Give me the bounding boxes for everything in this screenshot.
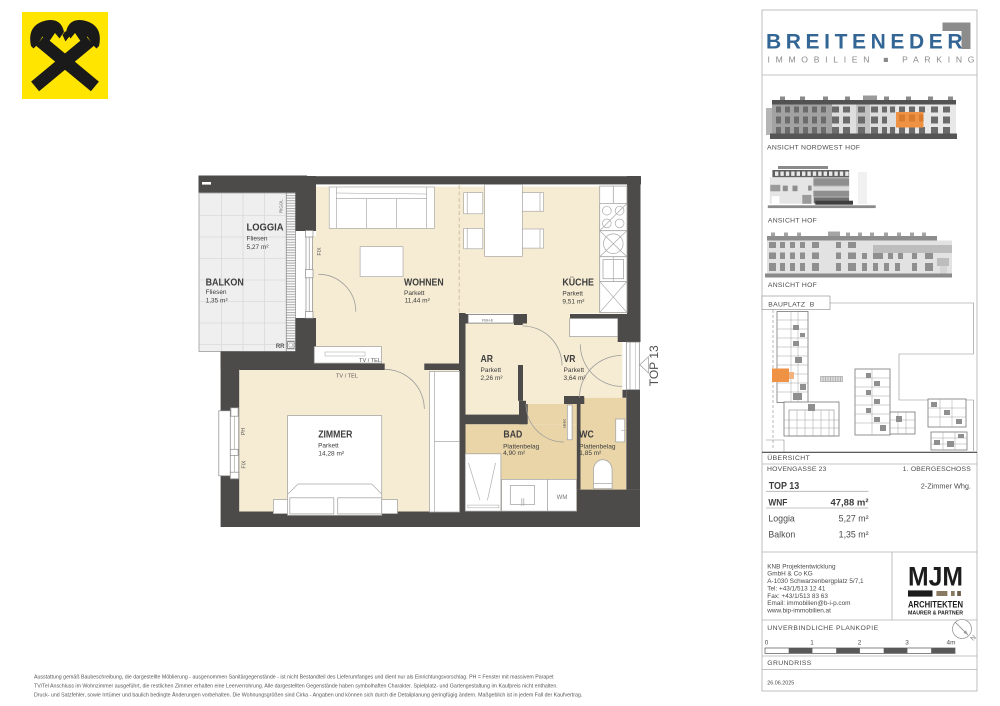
svg-text:Tel: +43/1/513 12 41: Tel: +43/1/513 12 41 — [767, 585, 826, 592]
svg-text:FIX: FIX — [241, 460, 247, 468]
svg-text:Parkett: Parkett — [404, 290, 425, 297]
svg-text:Parkett: Parkett — [564, 367, 585, 374]
svg-text:Balkon: Balkon — [768, 530, 795, 540]
svg-text:Parkett: Parkett — [481, 367, 502, 374]
svg-text:0: 0 — [765, 639, 769, 646]
svg-text:Email: immobilien@b-i-p.com: Email: immobilien@b-i-p.com — [767, 600, 850, 607]
svg-text:www.bip-immobilien.at: www.bip-immobilien.at — [766, 608, 831, 615]
svg-text:HOVENGASSE 23: HOVENGASSE 23 — [767, 466, 827, 473]
svg-text:UNVERBINDLICHE PLANKOPIE: UNVERBINDLICHE PLANKOPIE — [767, 625, 878, 632]
svg-text:Fax: +43/1/513 83 63: Fax: +43/1/513 83 63 — [767, 593, 828, 600]
svg-text:RR: RR — [276, 344, 285, 350]
svg-text:TOP 13: TOP 13 — [769, 481, 800, 492]
svg-text:FBH-E: FBH-E — [482, 319, 494, 323]
svg-text:ZIMMER: ZIMMER — [318, 430, 353, 441]
svg-text:3,64 m²: 3,64 m² — [564, 375, 587, 382]
svg-text:ANSICHT HOF: ANSICHT HOF — [768, 282, 817, 289]
svg-text:Druck- und Satzfehler, sowie I: Druck- und Satzfehler, sowie Irrtümer un… — [34, 692, 582, 699]
svg-text:1. OBERGESCHOSS: 1. OBERGESCHOSS — [903, 466, 972, 473]
svg-text:1,35 m²: 1,35 m² — [839, 530, 869, 540]
svg-text:4,90 m²: 4,90 m² — [503, 450, 526, 457]
svg-text:ARCHITEKTEN: ARCHITEKTEN — [908, 599, 963, 609]
svg-text:ANSICHT HOF: ANSICHT HOF — [768, 217, 817, 224]
svg-text:KÜCHE: KÜCHE — [562, 276, 594, 289]
svg-text:2,26 m²: 2,26 m² — [481, 375, 504, 382]
svg-text:47,88 m²: 47,88 m² — [830, 498, 868, 509]
svg-text:TV / TEL: TV / TEL — [336, 374, 358, 380]
svg-text:IMMOBILIEN ■ PARKING: IMMOBILIEN ■ PARKING — [768, 55, 981, 65]
svg-text:Ausstattung gemäß Baubeschreib: Ausstattung gemäß Baubeschreibung, die d… — [34, 674, 554, 680]
svg-text:LOGGIA: LOGGIA — [247, 223, 284, 234]
svg-text:Fliesen: Fliesen — [247, 236, 268, 243]
svg-text:PH: PH — [241, 428, 247, 435]
svg-text:BALKON: BALKON — [206, 277, 244, 288]
svg-text:5,27 m²: 5,27 m² — [839, 514, 869, 524]
svg-text:BAUPLATZ B: BAUPLATZ B — [768, 301, 814, 308]
svg-text:1,85 m²: 1,85 m² — [579, 450, 602, 457]
svg-text:1: 1 — [810, 639, 814, 646]
svg-text:FIX: FIX — [317, 247, 323, 256]
svg-text:GRUNDRISS: GRUNDRISS — [767, 660, 811, 667]
svg-text:14,28 m²: 14,28 m² — [318, 451, 344, 458]
svg-text:5,27 m²: 5,27 m² — [247, 244, 270, 251]
svg-text:4m: 4m — [947, 639, 956, 646]
svg-text:TOP 13: TOP 13 — [649, 345, 661, 386]
svg-text:TV / TEL: TV / TEL — [359, 358, 381, 364]
svg-text:WOHNEN: WOHNEN — [404, 277, 444, 288]
svg-text:RIGOL: RIGOL — [279, 199, 284, 213]
svg-text:WNF: WNF — [768, 498, 787, 509]
svg-text:VR: VR — [564, 354, 577, 365]
svg-text:ANSICHT NORDWEST HOF: ANSICHT NORDWEST HOF — [767, 145, 860, 152]
svg-text:KNB Projektentwicklung: KNB Projektentwicklung — [767, 563, 836, 570]
svg-text:BAD: BAD — [503, 429, 522, 440]
svg-text:11,44 m²: 11,44 m² — [405, 298, 431, 305]
svg-text:MJM: MJM — [908, 562, 963, 592]
svg-text:GmbH & Co KG: GmbH & Co KG — [767, 571, 812, 578]
svg-text:HHK: HHK — [562, 419, 567, 428]
svg-text:Parkett: Parkett — [318, 443, 339, 450]
svg-text:WM: WM — [557, 495, 568, 501]
svg-text:TV/Tel Anschluss im Wohnzimmer: TV/Tel Anschluss im Wohnzimmer ausgeführ… — [34, 684, 558, 690]
svg-text:9,51 m²: 9,51 m² — [562, 299, 585, 306]
svg-text:Loggia: Loggia — [768, 514, 795, 524]
svg-text:2: 2 — [858, 639, 862, 646]
svg-text:2-Zimmer Whg.: 2-Zimmer Whg. — [921, 482, 971, 491]
svg-text:Parkett: Parkett — [562, 291, 583, 298]
svg-text:1,35 m²: 1,35 m² — [206, 298, 229, 305]
svg-text:MAURER & PARTNER: MAURER & PARTNER — [908, 611, 963, 617]
svg-text:ÜBERSICHT: ÜBERSICHT — [767, 454, 810, 462]
svg-text:Fliesen: Fliesen — [206, 289, 227, 296]
svg-text:BREITENEDER: BREITENEDER — [766, 31, 967, 54]
svg-text:AR: AR — [481, 354, 494, 365]
svg-text:A-1030 Schwarzenbergplatz 5/7,: A-1030 Schwarzenbergplatz 5/7,1 — [767, 578, 864, 585]
svg-text:26.06.2025: 26.06.2025 — [767, 681, 794, 687]
svg-text:3: 3 — [905, 639, 909, 646]
svg-text:WC: WC — [579, 429, 594, 440]
